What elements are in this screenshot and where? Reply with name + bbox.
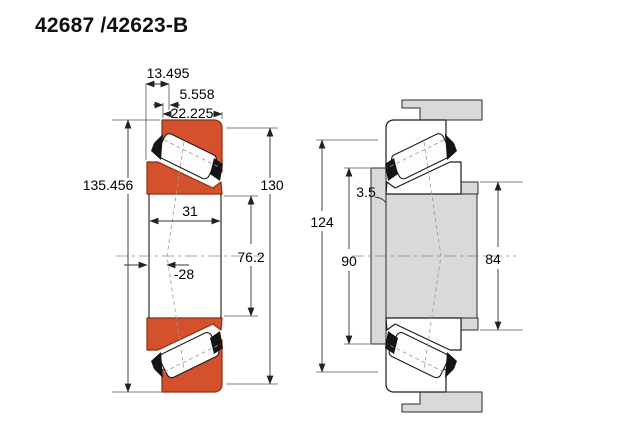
- mounted-view: 124 90 84 3.5: [310, 100, 523, 412]
- shaft-spacer-bottom: [461, 318, 478, 330]
- dim-label: -28: [174, 266, 194, 282]
- shaft-spacer-top: [461, 182, 478, 194]
- dim-label: 13.495: [147, 65, 190, 81]
- dim-label: 84: [485, 251, 501, 267]
- dim-label: 5.558: [179, 86, 214, 102]
- dim-label: 90: [341, 253, 357, 269]
- dim-cup-width: 22.225: [163, 105, 222, 121]
- dim-load-center-offset: -28: [124, 265, 194, 282]
- dim-label: 130: [260, 177, 284, 193]
- housing-block-bottom: [402, 392, 482, 412]
- dim-label: 135.456: [83, 177, 134, 193]
- housing-block-top: [402, 100, 482, 120]
- dim-label: 22.225: [171, 105, 214, 121]
- bearing-section-view: 13.495 5.558 22.225 135.456: [83, 65, 284, 392]
- dim-label: 124: [310, 214, 334, 230]
- bearing-drawing: 124 90 84 3.5: [0, 0, 640, 440]
- dim-label: 3.5: [356, 184, 376, 200]
- dim-label: 76.2: [237, 249, 264, 265]
- dim-bore-dia: 76.2: [224, 196, 265, 316]
- dim-inner-width: 31: [150, 203, 220, 221]
- dim-label: 31: [182, 203, 198, 219]
